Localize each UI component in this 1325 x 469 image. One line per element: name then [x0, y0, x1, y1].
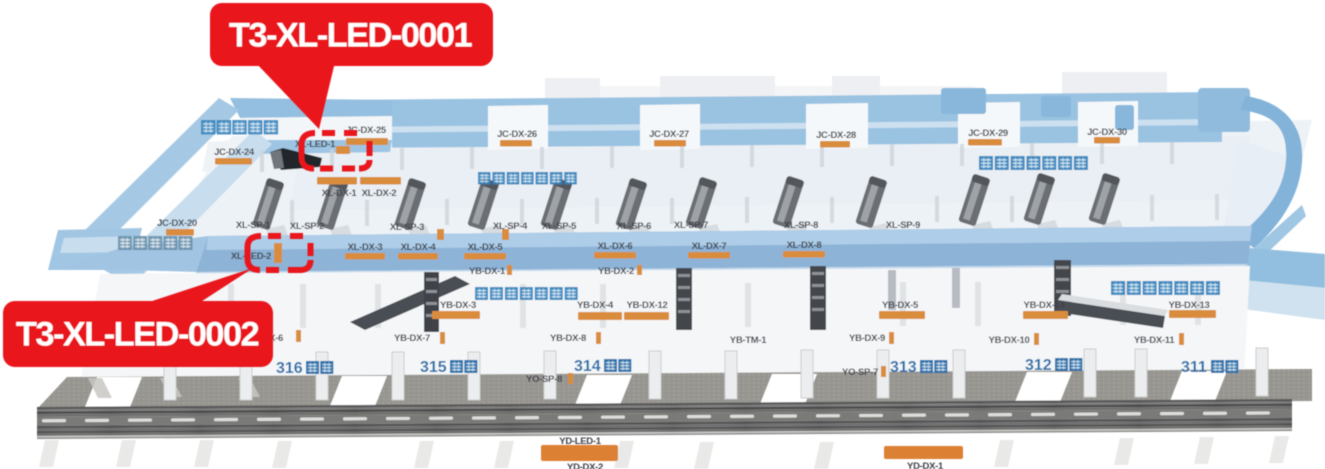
svg-text:JC-DX-27: JC-DX-27 [649, 129, 689, 140]
svg-text:315: 315 [420, 359, 447, 376]
svg-text:JC-DX-24: JC-DX-24 [214, 147, 255, 158]
svg-text:JC-DX-20: JC-DX-20 [157, 218, 197, 229]
svg-text:YB-DX-1: YB-DX-1 [469, 266, 506, 277]
svg-text:XL-DX-6: XL-DX-6 [598, 241, 633, 252]
svg-text:YD-DX-2: YD-DX-2 [567, 462, 603, 469]
svg-text:XL-DX-3: XL-DX-3 [348, 242, 383, 253]
svg-text:YB-DX-11: YB-DX-11 [1134, 335, 1175, 346]
svg-text:XL-DX-2: XL-DX-2 [362, 188, 397, 199]
svg-text:YB-DX-2: YB-DX-2 [598, 266, 634, 277]
svg-text:YB-DX-4: YB-DX-4 [577, 300, 614, 311]
svg-text:XL-DX-7: XL-DX-7 [692, 241, 727, 252]
svg-text:YB-TM-1: YB-TM-1 [730, 335, 767, 346]
svg-text:YB-DX-8: YB-DX-8 [550, 333, 586, 344]
svg-text:XL-DX-5: XL-DX-5 [468, 242, 504, 253]
svg-text:XL-SP-8: XL-SP-8 [784, 220, 818, 231]
svg-text:YB-DX-12: YB-DX-12 [627, 300, 668, 311]
svg-text:XL-DX-4: XL-DX-4 [401, 242, 437, 253]
svg-text:YD-DX-1: YD-DX-1 [907, 461, 944, 469]
svg-text:YB-DX-13: YB-DX-13 [1169, 300, 1210, 311]
svg-text:T3-XL-LED-0002: T3-XL-LED-0002 [16, 316, 259, 354]
svg-text:JC-DX-28: JC-DX-28 [816, 130, 856, 141]
svg-text:XL-SP-4: XL-SP-4 [493, 221, 528, 232]
svg-text:YB-DX-9: YB-DX-9 [849, 333, 885, 344]
svg-text:XL-SP-6: XL-SP-6 [617, 221, 651, 232]
svg-text:316: 316 [276, 360, 303, 377]
svg-text:XL-SP-1: XL-SP-1 [236, 220, 271, 231]
svg-text:XL-DX-8: XL-DX-8 [787, 240, 822, 251]
svg-text:XL-SP-5: XL-SP-5 [542, 221, 577, 232]
svg-text:YB-DX-3: YB-DX-3 [440, 300, 476, 311]
svg-text:T3-XL-LED-0001: T3-XL-LED-0001 [229, 17, 473, 55]
svg-text:311: 311 [1181, 359, 1207, 376]
svg-text:XL-SP-3: XL-SP-3 [390, 222, 424, 233]
svg-text:YB-DX-14: YB-DX-14 [1024, 300, 1066, 311]
svg-text:JC-DX-26: JC-DX-26 [497, 129, 537, 140]
svg-text:313: 313 [890, 359, 917, 376]
svg-text:YO-SP-7: YO-SP-7 [842, 367, 878, 378]
svg-text:YD-LED-1: YD-LED-1 [559, 436, 601, 447]
svg-text:YB-DX-10: YB-DX-10 [989, 335, 1030, 346]
svg-text:XL-SP-7: XL-SP-7 [674, 220, 708, 231]
svg-text:YB-DX-7: YB-DX-7 [394, 333, 430, 344]
svg-text:YB-DX-5: YB-DX-5 [882, 300, 919, 311]
svg-text:YO-SP-8: YO-SP-8 [526, 374, 562, 385]
svg-text:XL-SP-2: XL-SP-2 [290, 221, 324, 232]
svg-text:XL-LED-2: XL-LED-2 [231, 251, 271, 262]
svg-text:XL-SP-9: XL-SP-9 [886, 220, 920, 231]
svg-text:312: 312 [1025, 357, 1052, 374]
svg-text:314: 314 [574, 358, 601, 375]
svg-text:XL-DX-1: XL-DX-1 [322, 188, 358, 199]
svg-text:JC-DX-30: JC-DX-30 [1087, 127, 1127, 138]
svg-text:JC-DX-29: JC-DX-29 [968, 128, 1008, 139]
